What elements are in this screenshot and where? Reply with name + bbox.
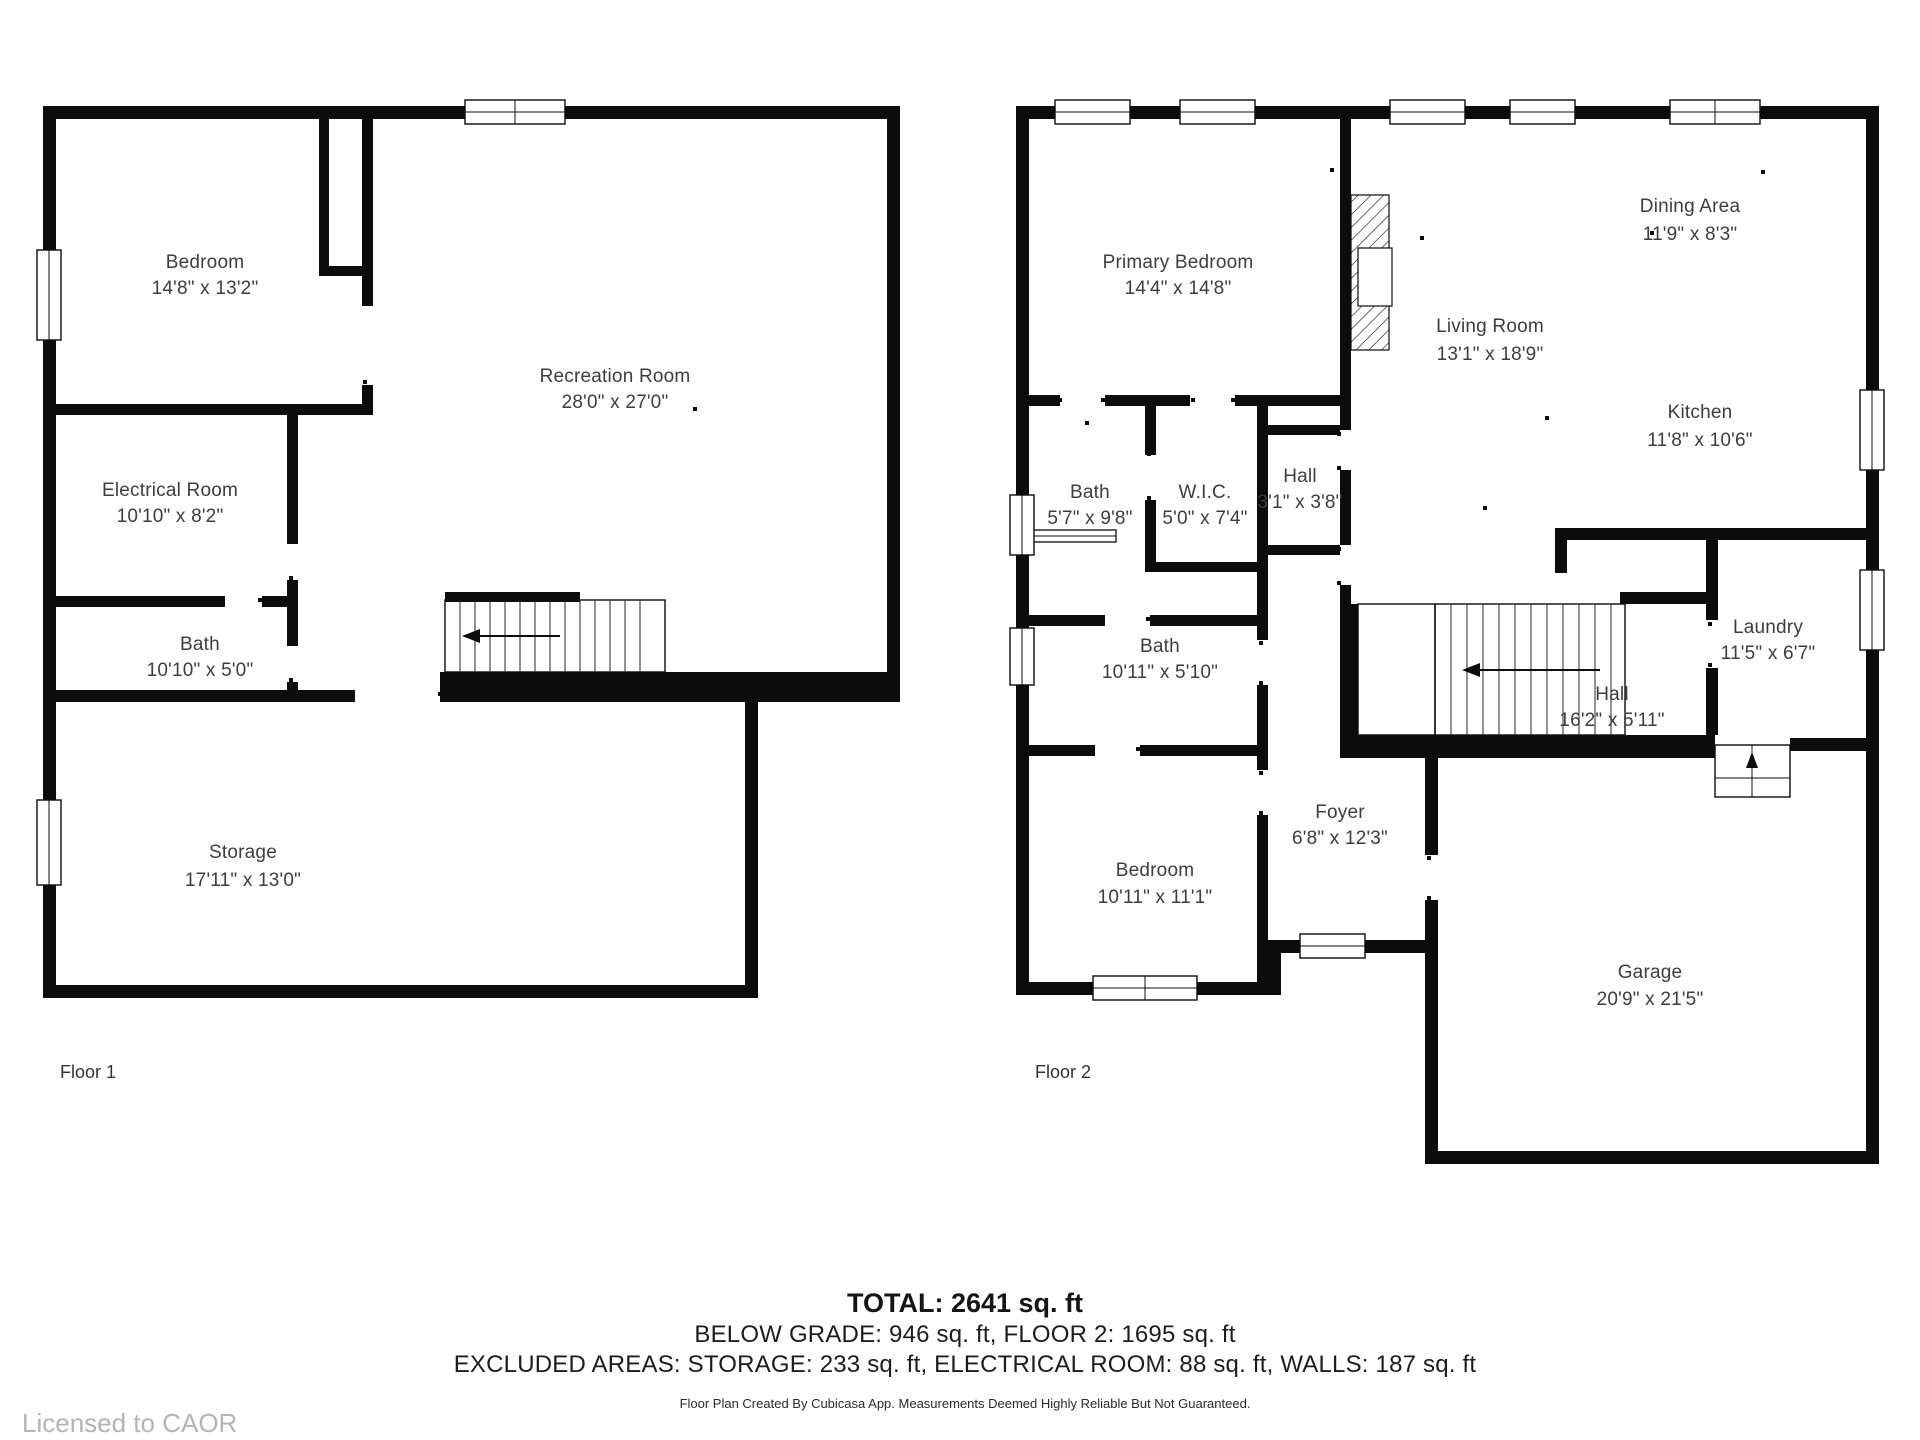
area-summary: TOTAL: 2641 sq. ft BELOW GRADE: 946 sq. …: [454, 1288, 1477, 1411]
floor1-room-labels: Bedroom 14'8" x 13'2" Recreation Room 28…: [102, 252, 690, 891]
fireplace-icon: [1351, 195, 1392, 350]
room-dims-bath-f1: 10'10" x 5'0": [147, 660, 254, 681]
room-label-bedroom-f1: Bedroom: [166, 252, 245, 273]
room-label-hall-small: Hall: [1283, 466, 1317, 487]
window-icon: [465, 100, 565, 124]
license-text: Licensed to CAOR: [22, 1408, 237, 1438]
room-label-living-room: Living Room: [1436, 316, 1544, 337]
room-dims-storage: 17'11" x 13'0": [185, 870, 301, 891]
window-icon: [1860, 390, 1884, 470]
window-icon: [1180, 100, 1255, 124]
floor1-walls: [43, 106, 900, 998]
room-dims-bath-upper: 5'7" x 9'8": [1047, 508, 1132, 529]
room-label-laundry: Laundry: [1733, 617, 1803, 638]
entry-door-icon: [1300, 934, 1365, 958]
room-label-hall-stairs: Hall: [1595, 684, 1629, 705]
window-icon: [37, 250, 61, 340]
room-dims-bath-lower: 10'11" x 5'10": [1102, 662, 1218, 683]
room-label-bath-f1: Bath: [180, 634, 220, 655]
room-label-kitchen: Kitchen: [1668, 402, 1733, 423]
window-icon: [1093, 976, 1197, 1000]
room-dims-dining-area: 11'9" x 8'3": [1643, 224, 1738, 245]
room-label-bedroom-f2: Bedroom: [1116, 860, 1195, 881]
room-dims-garage: 20'9" x 21'5": [1597, 989, 1704, 1010]
grade-area-text: BELOW GRADE: 946 sq. ft, FLOOR 2: 1695 s…: [694, 1321, 1235, 1348]
room-dims-bedroom-f1: 14'8" x 13'2": [152, 278, 259, 299]
room-label-bath-lower: Bath: [1140, 636, 1180, 657]
room-dims-electrical-room: 10'10" x 8'2": [117, 506, 224, 527]
window-icon: [37, 800, 61, 885]
room-label-bath-upper: Bath: [1070, 482, 1110, 503]
window-icon: [1670, 100, 1760, 124]
room-label-foyer: Foyer: [1315, 802, 1365, 823]
room-dims-laundry: 11'5" x 6'7": [1721, 643, 1816, 664]
room-label-wic: W.I.C.: [1179, 482, 1232, 503]
floor-plan-canvas: Bedroom 14'8" x 13'2" Recreation Room 28…: [0, 0, 1920, 1440]
excluded-area-text: EXCLUDED AREAS: STORAGE: 233 sq. ft, ELE…: [454, 1351, 1477, 1378]
room-label-recreation-room: Recreation Room: [540, 366, 691, 387]
disclaimer-text: Floor Plan Created By Cubicasa App. Meas…: [680, 1396, 1251, 1411]
room-dims-bedroom-f2: 10'11" x 11'1": [1098, 887, 1213, 908]
room-dims-recreation-room: 28'0" x 27'0": [562, 392, 669, 413]
window-icon: [1390, 100, 1465, 124]
room-label-storage: Storage: [209, 842, 277, 863]
floor1-label: Floor 1: [60, 1062, 116, 1082]
floor2-label: Floor 2: [1035, 1062, 1091, 1082]
room-dims-foyer: 6'8" x 12'3": [1292, 828, 1388, 849]
room-dims-kitchen: 11'8" x 10'6": [1647, 430, 1752, 451]
room-dims-primary-bedroom: 14'4" x 14'8": [1125, 278, 1232, 299]
window-icon: [1860, 570, 1884, 650]
floor2-plan: Primary Bedroom 14'4" x 14'8" Dining Are…: [1010, 100, 1884, 1164]
window-icon: [1010, 628, 1034, 685]
room-label-primary-bedroom: Primary Bedroom: [1103, 252, 1254, 273]
room-dims-hall-stairs: 16'2" x 5'11": [1559, 710, 1664, 731]
total-area-text: TOTAL: 2641 sq. ft: [847, 1288, 1083, 1318]
room-dims-living-room: 13'1" x 18'9": [1437, 344, 1544, 365]
window-icon: [1010, 495, 1034, 555]
room-label-garage: Garage: [1618, 962, 1683, 983]
door-markers: [46, 108, 897, 992]
room-label-electrical-room: Electrical Room: [102, 480, 238, 501]
room-label-dining-area: Dining Area: [1640, 196, 1741, 217]
window-icon: [1510, 100, 1575, 124]
room-dims-hall-small: 3'1" x 3'8": [1257, 492, 1342, 513]
floor1-plan: Bedroom 14'8" x 13'2" Recreation Room 28…: [37, 100, 900, 1082]
floor1-staircase: [445, 592, 665, 672]
towel-bar-icon: [1028, 530, 1116, 542]
room-dims-wic: 5'0" x 7'4": [1162, 508, 1247, 529]
garage-entry-steps-icon: [1715, 745, 1790, 797]
stair-direction-arrow-icon: [462, 629, 560, 643]
window-icon: [1055, 100, 1130, 124]
